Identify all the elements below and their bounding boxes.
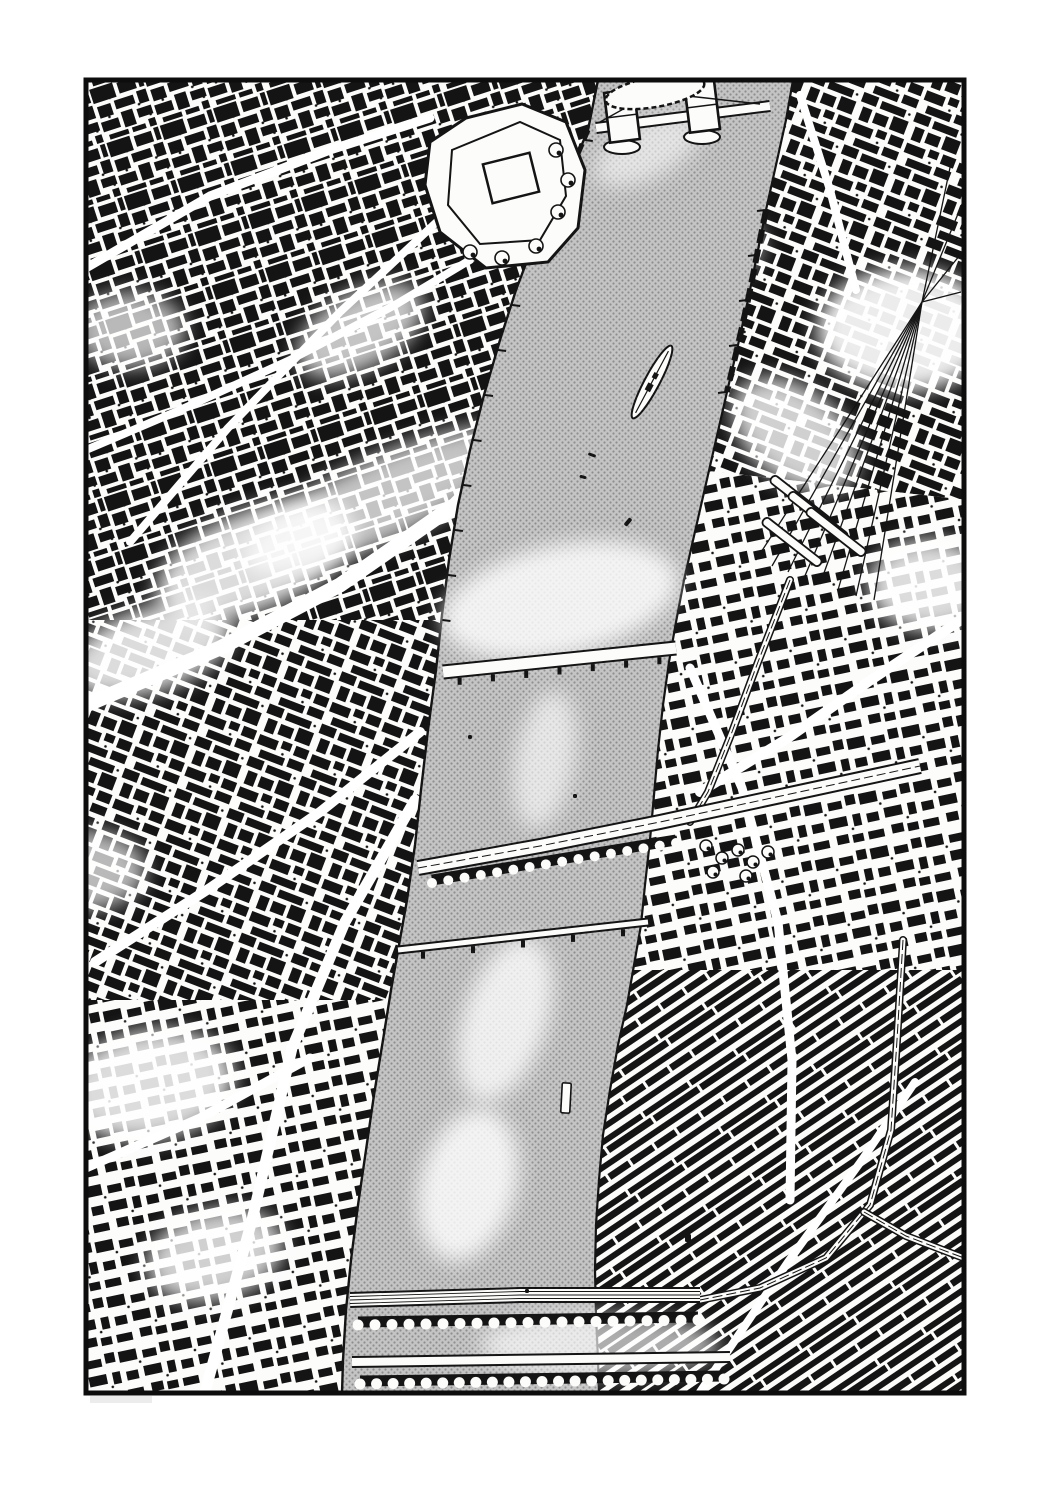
bottom-rail-bridge-arch — [540, 1317, 551, 1328]
bottom-rail-bridge-arch — [404, 1319, 415, 1330]
mid-rail-bridge-arch — [476, 870, 486, 880]
london-bridge-pier — [491, 674, 495, 681]
quay-tick — [748, 255, 756, 256]
castle-tree — [561, 173, 575, 187]
mid-rail-bridge-arch — [492, 867, 502, 877]
mid-rail-bridge-arch — [427, 878, 437, 888]
quay-tick — [729, 345, 737, 346]
park-tree-shadow — [754, 863, 758, 867]
bottom-road-bridge-arch — [636, 1375, 647, 1386]
bottom-road-bridge-arch — [437, 1377, 448, 1388]
bottom-rail-bridge-arch — [659, 1315, 670, 1326]
london-bridge-pier — [458, 678, 462, 685]
printed-page — [0, 0, 1049, 1500]
bottom-road-bridge-arch — [388, 1378, 399, 1389]
mid-rail-bridge-arch — [622, 846, 632, 856]
small-boat — [685, 1234, 691, 1242]
bottom-rail-bridge-arch — [693, 1315, 704, 1326]
quay-tick — [448, 575, 456, 576]
mid-rail-bridge-arch — [541, 859, 551, 869]
quay-tick — [512, 305, 520, 306]
park-tree-shadow — [739, 851, 743, 855]
park-tree — [747, 856, 759, 868]
aerial-city-illustration — [0, 0, 1049, 1500]
bottom-rail-bridge-arch — [574, 1316, 585, 1327]
bottom-road-bridge-arch — [603, 1375, 614, 1386]
bottom-road-bridge-arch — [669, 1374, 680, 1385]
park-tree-shadow — [707, 847, 711, 851]
bottom-rail-bridge-arch — [472, 1318, 483, 1329]
quay-tick — [585, 140, 593, 141]
bottom-road-bridge-arch — [586, 1375, 597, 1386]
bottom-road-bridge-arch — [355, 1379, 366, 1390]
london-bridge-pier — [558, 668, 562, 675]
bottom-rail-bridge-arch — [421, 1319, 432, 1330]
park-tree — [762, 846, 774, 858]
bottom-rail-bridge-arch — [438, 1318, 449, 1329]
bottom-road-bridge-arch — [702, 1374, 713, 1385]
london-bridge-pier — [624, 661, 628, 668]
castle-tree — [551, 205, 565, 219]
bottom-rail-bridge-arch — [353, 1320, 364, 1331]
bottom-road-bridge-arch — [570, 1376, 581, 1387]
bottom-road-bridge-arch — [487, 1377, 498, 1388]
mid-rail-bridge-arch — [638, 843, 648, 853]
quay-tick — [498, 350, 506, 351]
bottom-road-bridge-arch — [421, 1378, 432, 1389]
bottom-road-bridge-deck — [352, 1357, 730, 1362]
castle-tree — [463, 245, 477, 259]
mid-rail-bridge-arch — [460, 873, 470, 883]
bottom-road-bridge-arch — [537, 1376, 548, 1387]
bottom-road-bridge-arch — [652, 1374, 663, 1385]
park-tree-shadow — [769, 853, 773, 857]
mid-rail-bridge-arch — [525, 862, 535, 872]
southwark-bridge-pier — [421, 952, 425, 959]
bottom-rail-bridge-arch — [455, 1318, 466, 1329]
land-glow-7 — [868, 539, 992, 631]
quay-tick — [757, 210, 765, 211]
bottom-rail-bridge-arch — [557, 1317, 568, 1328]
faint-print-smudge — [90, 1396, 152, 1403]
quay-tick — [485, 395, 493, 396]
southwark-bridge-pier — [521, 941, 525, 948]
bottom-rail-bridge-arch — [489, 1318, 500, 1329]
bottom-rail-bridge-arch — [608, 1316, 619, 1327]
bottom-rail-bridge-arch — [506, 1317, 517, 1328]
bottom-road-bridge-arch — [371, 1378, 382, 1389]
land-glow-5 — [75, 292, 185, 368]
castle-tree-shadow — [503, 259, 508, 264]
park-tree — [732, 844, 744, 856]
castle-tree-shadow — [559, 213, 564, 218]
castle-tree — [495, 251, 509, 265]
southwark-bridge-pier — [471, 946, 475, 953]
park-tree — [707, 866, 719, 878]
bottom-road-bridge-arch — [685, 1374, 696, 1385]
castle-tree-shadow — [557, 151, 562, 156]
mid-rail-bridge-arch — [606, 849, 616, 859]
small-boat — [573, 794, 577, 798]
small-boat — [525, 1289, 529, 1293]
mid-rail-bridge-arch — [590, 851, 600, 861]
park-tree — [740, 870, 752, 882]
bottom-road-bridge-arch — [619, 1375, 630, 1386]
quay-tick — [718, 392, 726, 393]
bottom-rail-bridge-arch — [642, 1315, 653, 1326]
bottom-rail-bridge-arch — [523, 1317, 534, 1328]
land-glow-6 — [817, 268, 993, 392]
bottom-rail-bridge-arch — [625, 1316, 636, 1327]
bottom-road-bridge-arch — [470, 1377, 481, 1388]
bottom-road-bridge-arch — [719, 1374, 730, 1385]
park-tree-shadow — [747, 877, 751, 881]
castle-tree — [529, 239, 543, 253]
castle-tree-shadow — [471, 253, 476, 258]
bottom-road-bridge-arch — [404, 1378, 415, 1389]
quay-tick — [455, 530, 463, 531]
bottom-road-bridge-arch — [553, 1376, 564, 1387]
mid-rail-bridge-arch — [443, 875, 453, 885]
mid-rail-bridge-arch — [508, 865, 518, 875]
bottom-rail-bridge-arch — [676, 1315, 687, 1326]
castle-tree — [549, 143, 563, 157]
bottom-road-bridge-arch — [454, 1377, 465, 1388]
park-tree-shadow — [714, 873, 718, 877]
mid-rail-bridge-arch — [557, 857, 567, 867]
quay-tick — [442, 620, 450, 621]
southwark-bridge-pier — [621, 929, 625, 936]
small-boat — [468, 735, 472, 739]
castle-tree-shadow — [537, 247, 542, 252]
london-bridge-pier — [591, 664, 595, 671]
bottom-rail-bridge-arch — [387, 1319, 398, 1330]
southwark-bridge-pier — [571, 935, 575, 942]
mid-rail-bridge-arch — [655, 841, 665, 851]
bottom-rail-bridge-arch — [370, 1319, 381, 1330]
london-bridge-pier — [657, 657, 661, 664]
park-tree — [716, 852, 728, 864]
mid-rail-bridge-arch — [573, 854, 583, 864]
bottom-rail-bridge-deck — [350, 1295, 700, 1300]
quay-tick — [463, 485, 471, 486]
quay-tick — [739, 300, 747, 301]
castle-tree-shadow — [569, 181, 574, 186]
park-tree-shadow — [723, 859, 727, 863]
quay-tick — [474, 440, 482, 441]
barge — [561, 1083, 572, 1113]
bottom-road-bridge-arch — [520, 1376, 531, 1387]
bottom-rail-bridge-arch — [591, 1316, 602, 1327]
bottom-road-bridge-arch — [503, 1376, 514, 1387]
london-bridge-pier — [524, 671, 528, 678]
mid-rail-bridge-arch — [671, 838, 681, 848]
park-tree — [700, 840, 712, 852]
